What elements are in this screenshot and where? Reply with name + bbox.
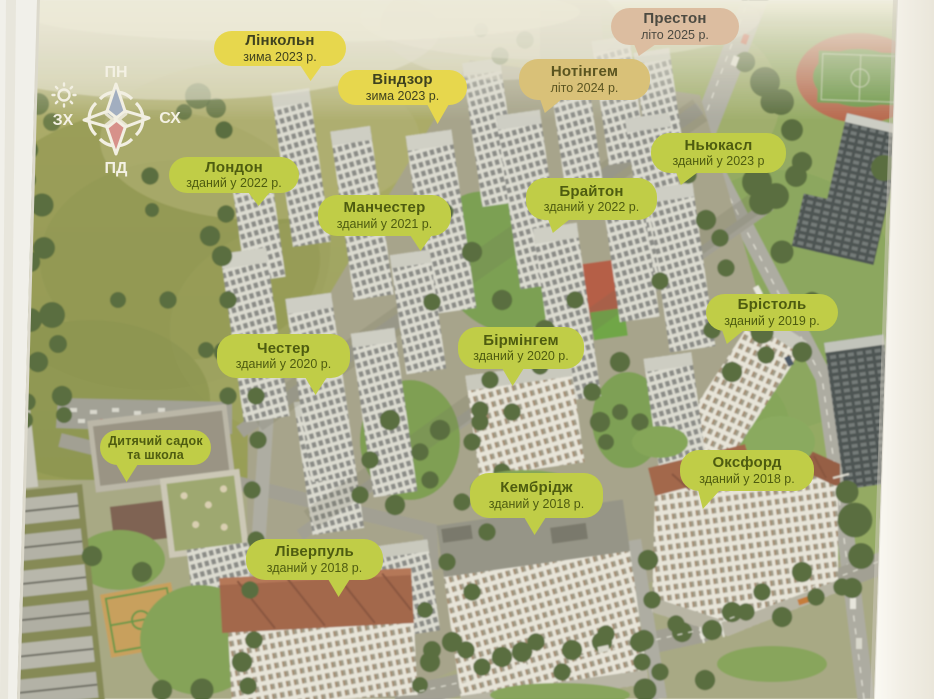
svg-text:ПН: ПН	[104, 64, 127, 81]
svg-text:СХ: СХ	[159, 110, 181, 127]
svg-text:ЗХ: ЗХ	[53, 112, 74, 129]
svg-text:ПД: ПД	[105, 160, 129, 177]
